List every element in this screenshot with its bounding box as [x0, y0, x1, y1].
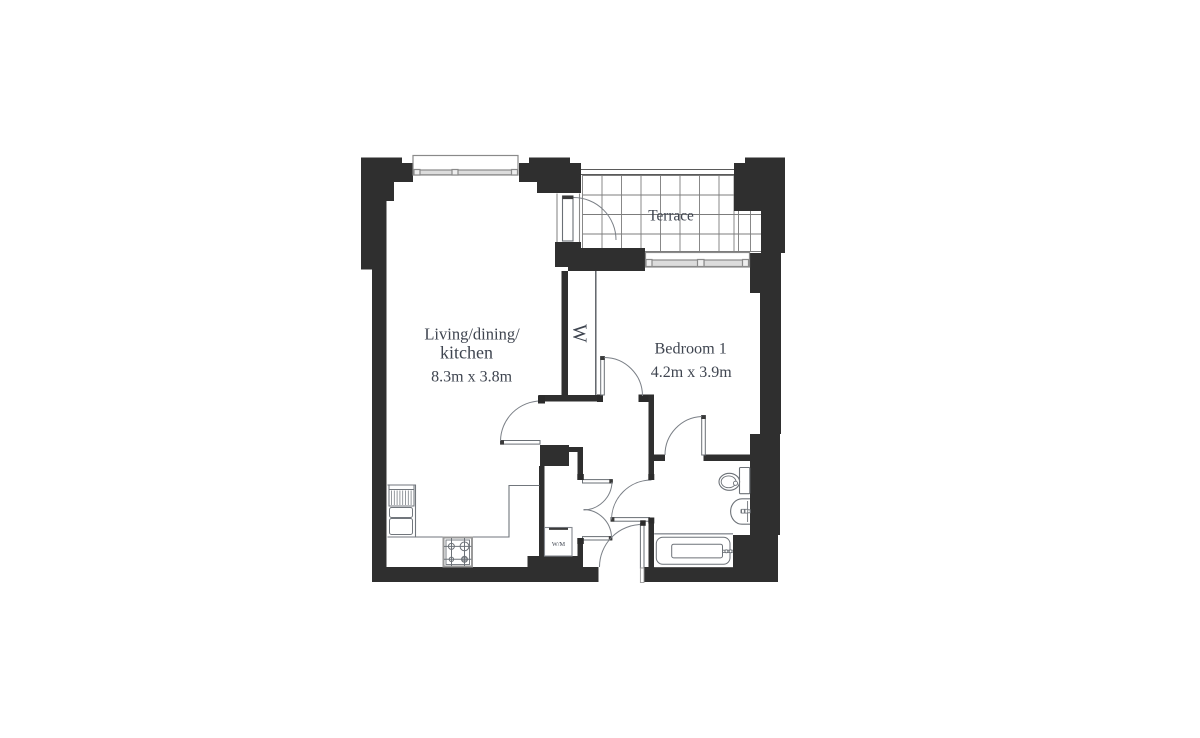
- svg-text:8.3m x 3.8m: 8.3m x 3.8m: [431, 369, 512, 386]
- svg-text:Bedroom 1: Bedroom 1: [655, 340, 727, 358]
- svg-text:Terrace: Terrace: [648, 208, 694, 225]
- svg-text:Living/dining/: Living/dining/: [424, 325, 520, 344]
- svg-text:kitchen: kitchen: [440, 343, 493, 363]
- svg-text:4.2m x 3.9m: 4.2m x 3.9m: [651, 364, 732, 381]
- svg-text:W: W: [569, 324, 590, 343]
- svg-text:W/M: W/M: [552, 541, 566, 548]
